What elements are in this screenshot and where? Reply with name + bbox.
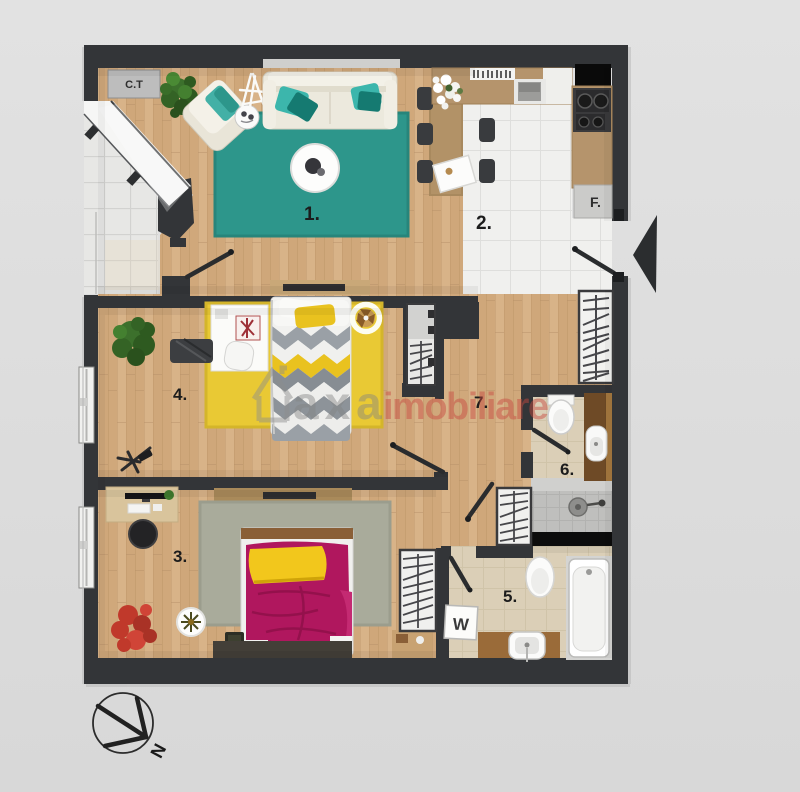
svg-text:4.: 4.: [173, 385, 187, 404]
svg-text:2.: 2.: [476, 213, 492, 234]
svg-text:F.: F.: [590, 194, 601, 210]
svg-text:5.: 5.: [503, 587, 517, 606]
svg-text:imobiliare: imobiliare: [383, 386, 548, 428]
svg-text:axa: axa: [293, 377, 388, 429]
svg-text:C.T: C.T: [125, 79, 143, 91]
svg-text:W: W: [452, 615, 470, 635]
svg-text:3.: 3.: [173, 547, 187, 566]
svg-text:6.: 6.: [560, 460, 574, 479]
svg-text:1.: 1.: [304, 204, 320, 225]
